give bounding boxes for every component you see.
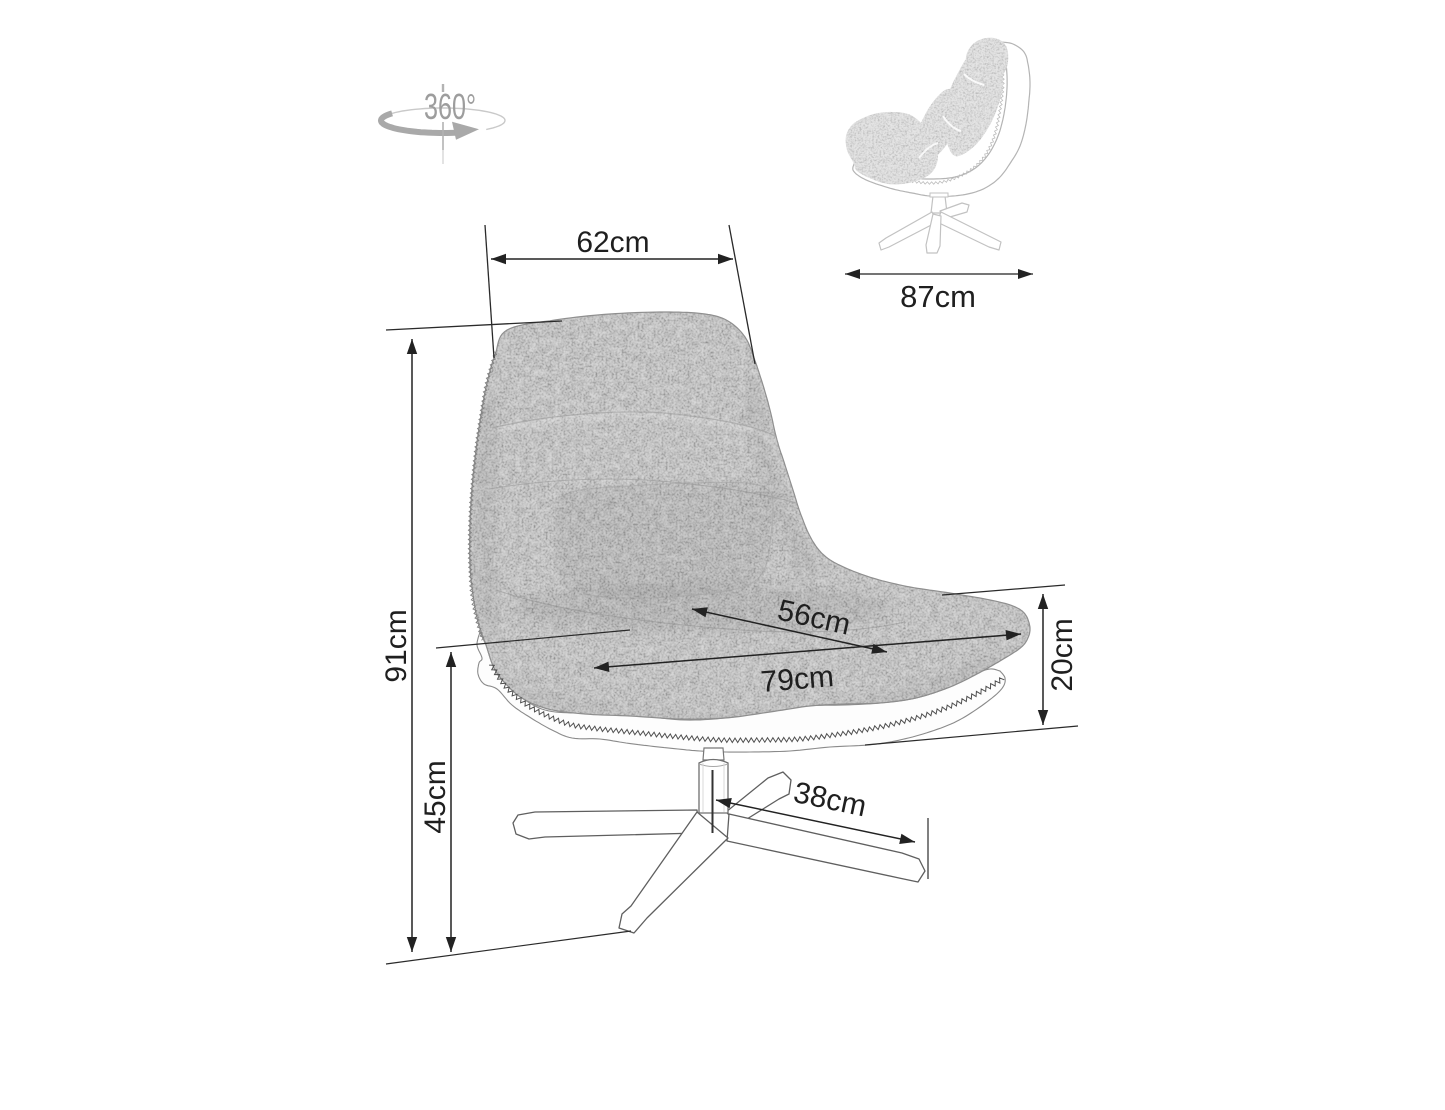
svg-text:20cm: 20cm [1046, 618, 1079, 691]
svg-text:79cm: 79cm [759, 660, 835, 699]
svg-text:45cm: 45cm [419, 760, 452, 833]
svg-text:38cm: 38cm [791, 776, 870, 823]
svg-text:360°: 360° [424, 86, 476, 127]
svg-text:91cm: 91cm [380, 609, 413, 682]
svg-text:87cm: 87cm [900, 279, 976, 314]
svg-text:62cm: 62cm [576, 226, 649, 259]
